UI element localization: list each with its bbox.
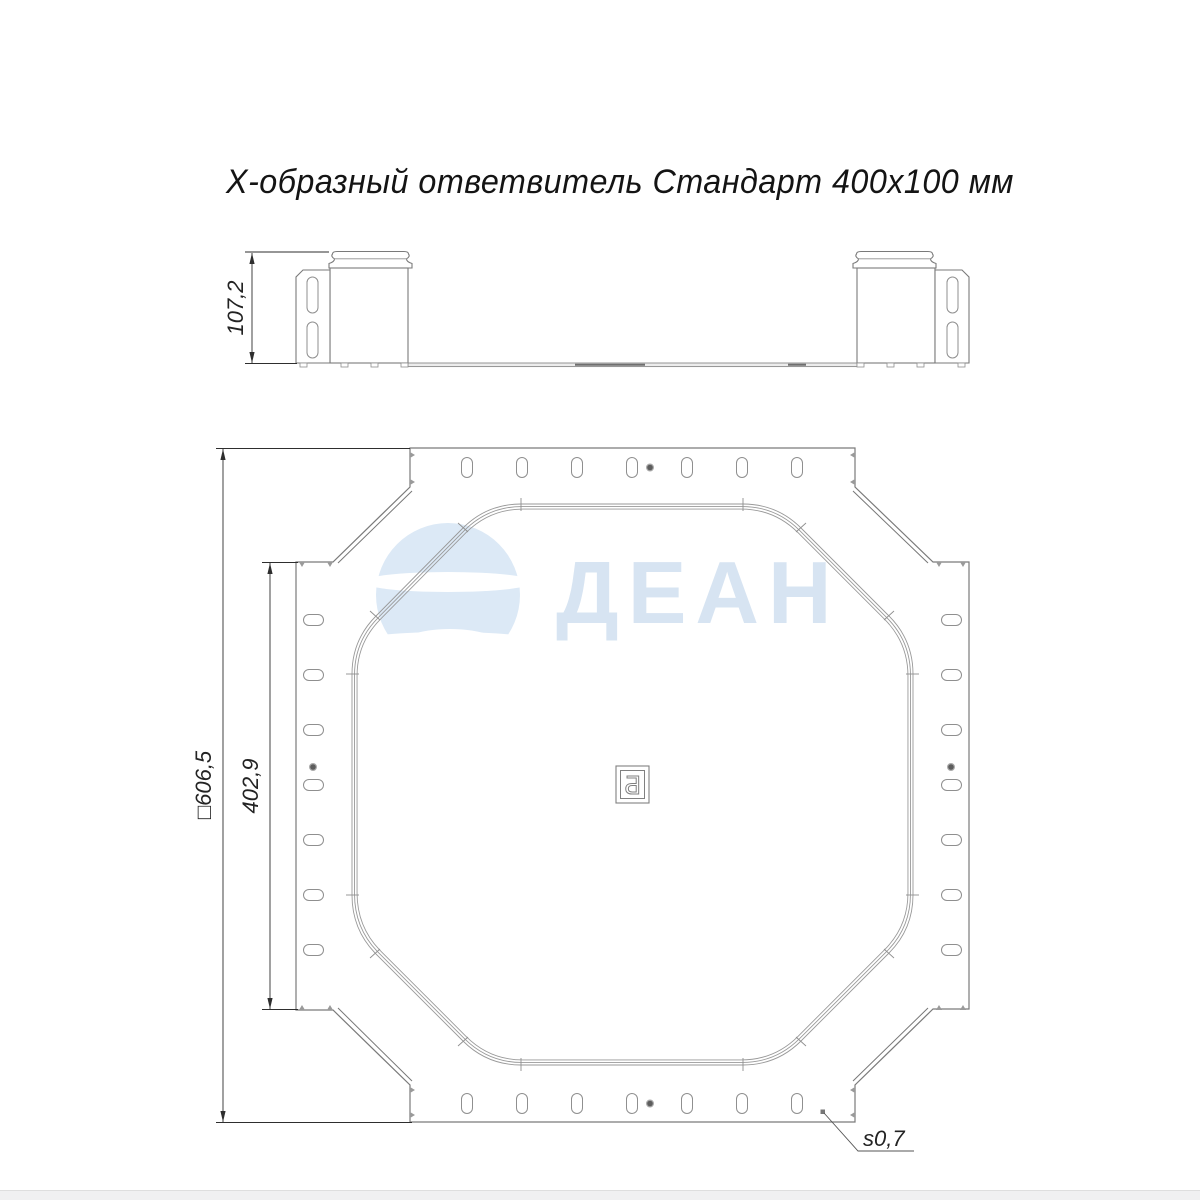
technical-drawing-page: ДЕАН [0,0,1200,1200]
drawing-canvas: 107,2 [0,0,1200,1200]
side-view [296,252,969,368]
dimension-label-606-5: □606,5 [191,750,216,819]
slot-row-bottom [462,1094,803,1114]
brand-letter: Б [624,771,641,800]
dimension-label-107-2: 107,2 [223,280,248,335]
slot-row-right [942,615,962,956]
brand-stamp: Б [616,766,649,803]
dimension-overall: □606,5 [191,449,412,1123]
dimension-label-402-9: 402,9 [238,758,263,813]
slot-row-top [462,458,803,478]
side-view-right-bracket [853,252,969,368]
plan-view: Б [296,448,969,1122]
footer-strip [0,1190,1200,1200]
side-view-left-bracket [296,252,412,368]
thickness-callout: s0,7 [821,1110,915,1152]
dimension-label-s0-7: s0,7 [863,1126,905,1151]
slot-row-left [304,615,324,956]
dimension-flange: 402,9 [238,563,298,1010]
